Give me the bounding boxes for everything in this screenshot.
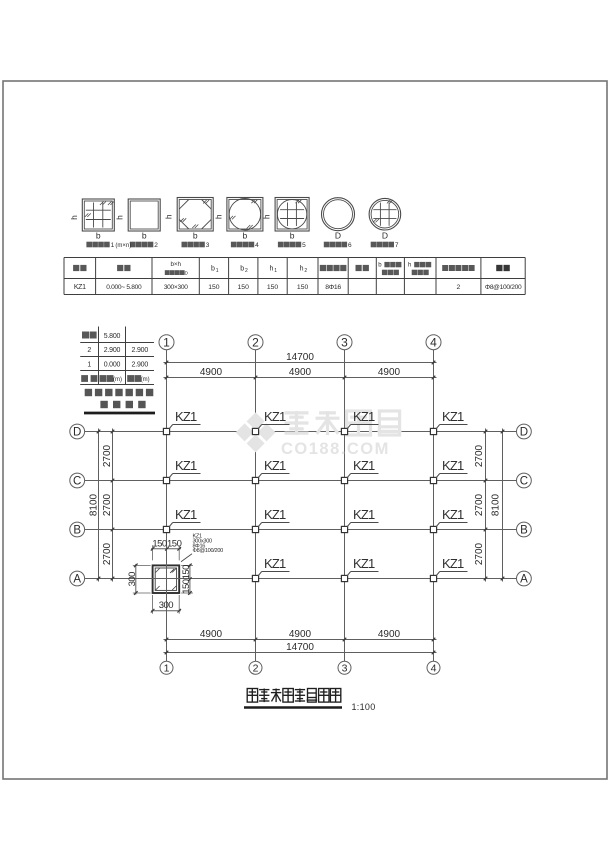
svg-text:D: D [335,231,341,241]
svg-text:4900: 4900 [289,367,312,378]
svg-text:1: 1 [164,663,170,675]
svg-text:KZ1: KZ1 [442,409,464,424]
svg-text:1: 1 [216,268,219,274]
svg-text:KZ1: KZ1 [442,458,464,473]
svg-text:4900: 4900 [378,629,401,640]
svg-text:D: D [184,270,188,276]
svg-text:300×300: 300×300 [164,284,188,291]
svg-text:b: b [240,266,244,273]
svg-text:2700: 2700 [102,444,113,467]
svg-text:2700: 2700 [474,542,485,565]
svg-text:b: b [290,231,295,241]
svg-text:b: b [243,231,248,241]
svg-text:150: 150 [181,579,192,594]
svg-text:0.000~ 5.800: 0.000~ 5.800 [106,284,142,291]
svg-text:Φ8@100/200: Φ8@100/200 [485,284,522,291]
svg-text:2: 2 [252,335,259,349]
svg-text:2: 2 [154,242,158,249]
svg-text:2: 2 [245,268,248,274]
svg-text:1:100: 1:100 [352,702,376,712]
svg-text:2700: 2700 [102,542,113,565]
svg-text:Φ8@100/200: Φ8@100/200 [193,548,224,554]
svg-text:KZ1: KZ1 [74,284,86,291]
svg-text:B: B [520,525,528,537]
svg-text:C: C [73,476,81,488]
svg-text:150: 150 [152,539,167,550]
svg-text:h: h [164,214,174,219]
svg-text:4900: 4900 [289,629,312,640]
svg-text:4: 4 [431,663,437,675]
svg-text:300: 300 [159,600,174,611]
svg-text:h: h [69,215,79,220]
svg-text:14700: 14700 [286,352,314,363]
svg-text:3: 3 [341,335,348,349]
svg-text:2700: 2700 [474,493,485,516]
svg-text:1: 1 [87,362,91,369]
svg-text:C: C [520,476,528,488]
svg-text:KZ1: KZ1 [442,556,464,571]
svg-text:4900: 4900 [378,367,401,378]
svg-text:3: 3 [206,242,210,249]
svg-text:KZ1: KZ1 [175,409,197,424]
svg-text:150: 150 [297,284,309,291]
svg-text:KZ1: KZ1 [264,409,286,424]
svg-text:b: b [193,231,198,241]
svg-text:b: b [142,231,147,241]
svg-text:8Φ16: 8Φ16 [325,284,341,291]
svg-text:300: 300 [127,572,138,587]
svg-text:KZ1: KZ1 [175,507,197,522]
svg-text:h: h [408,262,411,268]
svg-text:KZ1: KZ1 [353,556,375,571]
svg-text:2: 2 [87,347,91,354]
svg-text:150: 150 [267,284,279,291]
svg-text:h: h [213,214,223,219]
svg-text:CO188.COM: CO188.COM [281,440,390,458]
svg-text:4900: 4900 [200,629,223,640]
svg-text:2700: 2700 [474,444,485,467]
svg-text:2.900: 2.900 [132,347,149,354]
svg-text:b: b [211,266,215,273]
svg-text:14700: 14700 [286,642,314,653]
svg-text:150: 150 [181,565,192,580]
svg-text:150: 150 [167,539,182,550]
svg-text:KZ1: KZ1 [353,409,375,424]
svg-text:2.900: 2.900 [104,347,121,354]
svg-text:2700: 2700 [102,493,113,516]
svg-text:4900: 4900 [200,367,223,378]
svg-text:6: 6 [348,242,352,249]
svg-text:h: h [270,266,274,273]
svg-text:KZ1: KZ1 [264,556,286,571]
svg-text:7: 7 [395,242,399,249]
svg-text:(m×n): (m×n) [115,243,131,249]
svg-text:b×h: b×h [170,261,181,268]
svg-text:A: A [73,574,81,586]
svg-text:2: 2 [457,284,461,291]
svg-text:D: D [73,427,81,439]
svg-text:2.900: 2.900 [132,362,149,369]
svg-text:2: 2 [304,268,307,274]
svg-text:KZ1: KZ1 [442,507,464,522]
svg-text:5: 5 [302,242,306,249]
svg-text:h: h [262,214,272,219]
svg-text:KZ1: KZ1 [264,458,286,473]
svg-text:1: 1 [274,268,277,274]
svg-text:KZ1: KZ1 [353,458,375,473]
svg-text:(m): (m) [113,377,122,383]
svg-text:D: D [520,427,528,439]
svg-text:KZ1: KZ1 [353,507,375,522]
svg-text:5.800: 5.800 [104,333,121,340]
svg-text:KZ1: KZ1 [175,458,197,473]
svg-text:h: h [300,266,304,273]
svg-text:A: A [520,574,528,586]
svg-text:B: B [73,525,81,537]
svg-text:(m): (m) [141,377,150,383]
svg-text:KZ1: KZ1 [264,507,286,522]
svg-text:b: b [96,231,101,241]
svg-text:1: 1 [163,335,170,349]
svg-text:2: 2 [253,663,259,675]
svg-text:8100: 8100 [88,493,99,516]
svg-text:h: h [115,215,125,220]
svg-text:3: 3 [342,663,348,675]
svg-text:4: 4 [255,242,259,249]
svg-text:150: 150 [238,284,250,291]
svg-text:0.000: 0.000 [104,362,121,369]
svg-text:1: 1 [111,242,115,249]
svg-text:D: D [382,231,388,241]
svg-text:150: 150 [208,284,220,291]
svg-text:4: 4 [430,335,437,349]
svg-text:8100: 8100 [491,493,502,516]
